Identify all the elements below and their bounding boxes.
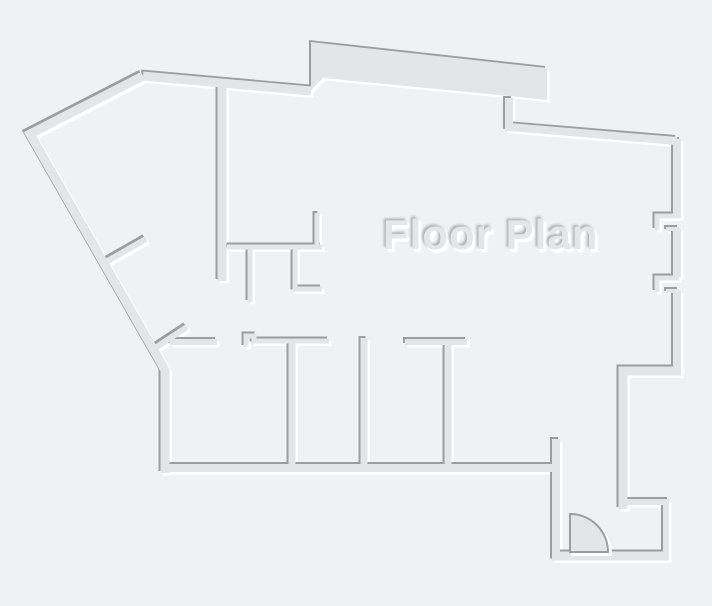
right-step-wall [623,371,681,509]
floor-plan: Floor Plan [0,0,712,606]
diagonal-spur-upper [104,239,146,263]
outer-west-diagonal-and-left-wall [28,74,163,471]
floor-plan-title: Floor Plan [383,211,598,259]
outer-west-diagonal-and-left-wall [33,79,168,476]
right-step-wall [626,374,684,512]
floor-plan-canvas [0,0,712,606]
door-leaf-and-arc [570,514,608,552]
outer-west-diagonal-and-left-wall [30,76,165,473]
thick-top-wall-slab [311,42,547,100]
wall-fill-layer [30,42,681,557]
entry-door-swing [570,514,611,555]
